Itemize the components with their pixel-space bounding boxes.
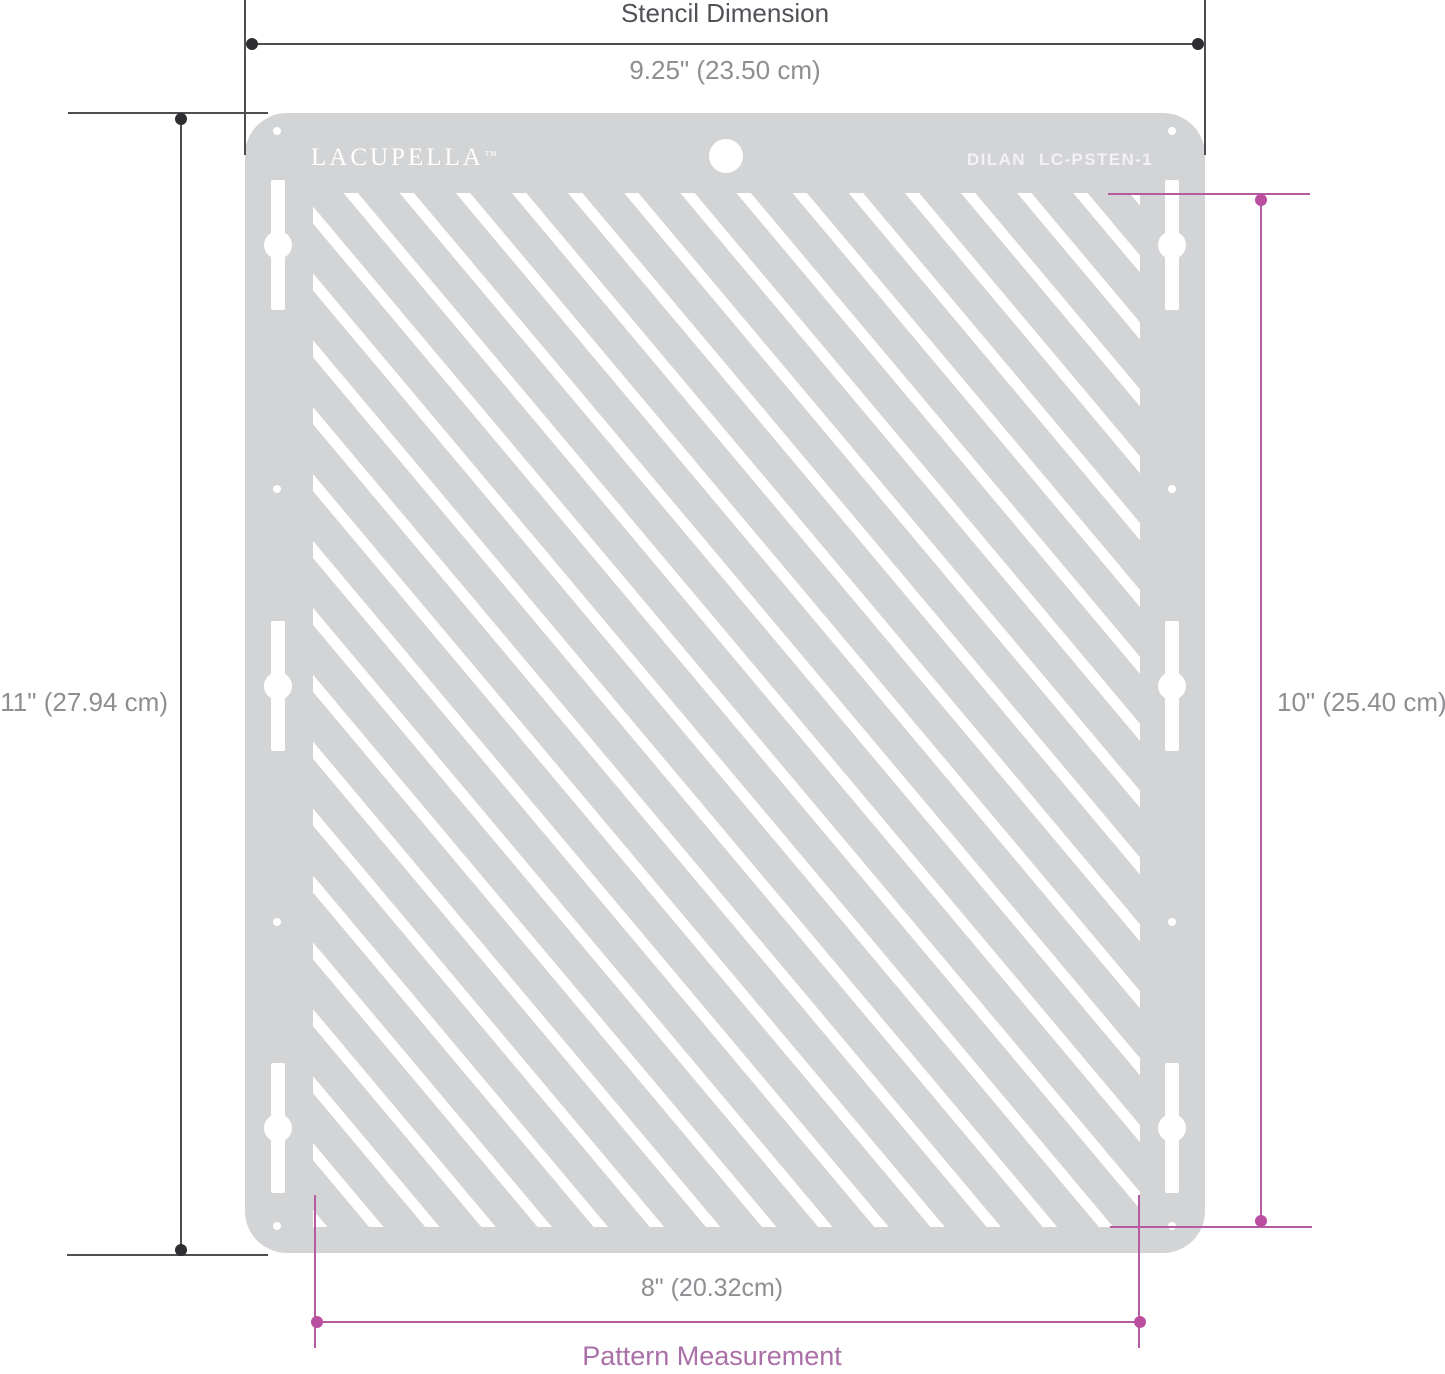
registration-circle [264, 1114, 292, 1142]
diagonal-stripe-pattern [313, 193, 1140, 1227]
alignment-hole [273, 485, 281, 493]
dimension-endpoint-dot [1255, 1215, 1267, 1227]
dimension-endpoint-dot [1255, 194, 1267, 206]
left-dimension-line [180, 119, 182, 1250]
registration-mark [1158, 621, 1186, 751]
registration-mark [1158, 1063, 1186, 1193]
registration-circle [264, 231, 292, 259]
registration-mark [264, 621, 292, 751]
model-code: LC-PSTEN-1 [1039, 150, 1153, 170]
dimension-endpoint-dot [246, 38, 258, 50]
dimension-endpoint-dot [1134, 1316, 1146, 1328]
registration-mark [1158, 180, 1186, 310]
alignment-hole [1168, 127, 1176, 135]
model-label: DILAN LC-PSTEN-1 [967, 150, 1153, 170]
stencil-width-value: 9.25" (23.50 cm) [245, 55, 1205, 86]
registration-circle [1158, 1114, 1186, 1142]
registration-circle [264, 672, 292, 700]
registration-circle [1158, 672, 1186, 700]
pattern-width-value: 8" (20.32cm) [312, 1274, 1112, 1303]
alignment-hole [1168, 918, 1176, 926]
stencil-dimension-title: Stencil Dimension [245, 0, 1205, 29]
extension-line [67, 1254, 268, 1256]
hanging-hole [709, 139, 743, 173]
alignment-hole [273, 127, 281, 135]
stencil-plate: LACUPELLATM DILAN LC-PSTEN-1 [245, 113, 1205, 1253]
extension-line [1110, 1226, 1312, 1228]
extension-line [68, 112, 268, 114]
dimension-endpoint-dot [175, 1244, 187, 1256]
registration-mark [264, 1063, 292, 1193]
dimension-endpoint-dot [175, 113, 187, 125]
pattern-measurement-title: Pattern Measurement [312, 1341, 1112, 1372]
pattern-height-value: 10" (25.40 cm) [1277, 687, 1445, 718]
right-dimension-line [1260, 200, 1262, 1221]
model-name: DILAN [967, 150, 1026, 170]
alignment-hole [273, 918, 281, 926]
stencil-height-value: 11" (27.94 cm) [0, 687, 168, 718]
trademark-symbol: TM [485, 150, 498, 158]
registration-mark [264, 180, 292, 310]
alignment-hole [1168, 485, 1176, 493]
brand-name: LACUPELLA [311, 144, 484, 171]
top-dimension-line [251, 43, 1199, 45]
stencil-dimension-diagram: LACUPELLATM DILAN LC-PSTEN-1 Stencil Dim… [0, 0, 1445, 1374]
brand-logo: LACUPELLATM [311, 144, 497, 172]
extension-line [1108, 193, 1310, 195]
dimension-endpoint-dot [311, 1316, 323, 1328]
registration-circle [1158, 231, 1186, 259]
bottom-dimension-line [317, 1321, 1140, 1323]
dimension-endpoint-dot [1192, 38, 1204, 50]
alignment-hole [273, 1222, 281, 1230]
